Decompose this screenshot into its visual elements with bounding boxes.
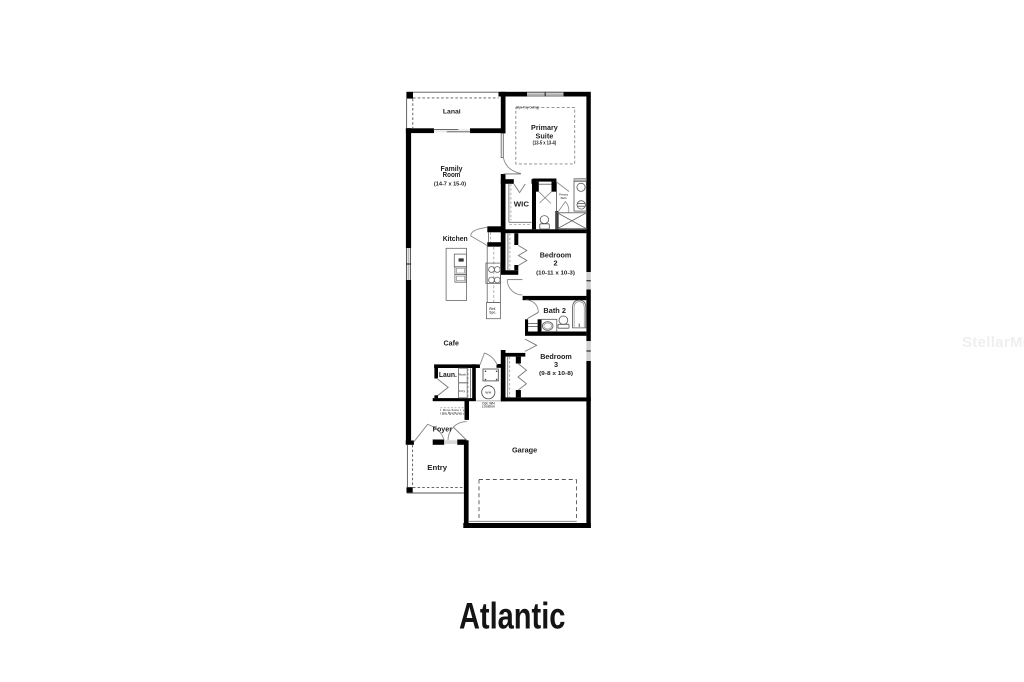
svg-text:Suite: Suite [536,132,554,141]
svg-text:StellarMLS: StellarMLS [962,334,1024,351]
svg-text:Wash: Wash [458,373,466,377]
svg-text:(13-5 x 13-4): (13-5 x 13-4) [533,140,557,146]
svg-text:(9-8 x 10-8): (9-8 x 10-8) [539,371,573,377]
svg-text:(Opt. Tray Ceiling): (Opt. Tray Ceiling) [516,105,540,109]
svg-text:Laun.: Laun. [439,370,457,379]
svg-text:Bath: Bath [561,196,567,200]
svg-text:Primary: Primary [531,123,559,132]
svg-text:WH: WH [485,391,492,395]
svg-text:Bath 2: Bath 2 [543,306,566,315]
svg-text:3: 3 [554,360,558,369]
svg-text:Opt. Mud Room: Opt. Mud Room [442,411,462,415]
svg-text:Foyer: Foyer [433,425,453,434]
svg-text:(14-7 x 15-0): (14-7 x 15-0) [434,181,466,187]
svg-text:Location: Location [482,405,495,409]
svg-text:Dry: Dry [459,389,465,393]
svg-text:Lanai: Lanai [443,109,461,116]
svg-text:Cafe: Cafe [444,338,459,347]
svg-text:WIC: WIC [514,201,529,208]
svg-text:2: 2 [553,259,557,268]
svg-text:Atlantic: Atlantic [459,596,566,637]
svg-text:Room: Room [443,170,461,179]
svg-text:(10-11 x 10-3): (10-11 x 10-3) [536,271,575,277]
svg-text:Garage: Garage [512,446,537,455]
svg-text:Spc.: Spc. [489,310,496,314]
svg-text:Kitchen: Kitchen [443,234,468,243]
svg-text:Entry: Entry [427,463,447,472]
